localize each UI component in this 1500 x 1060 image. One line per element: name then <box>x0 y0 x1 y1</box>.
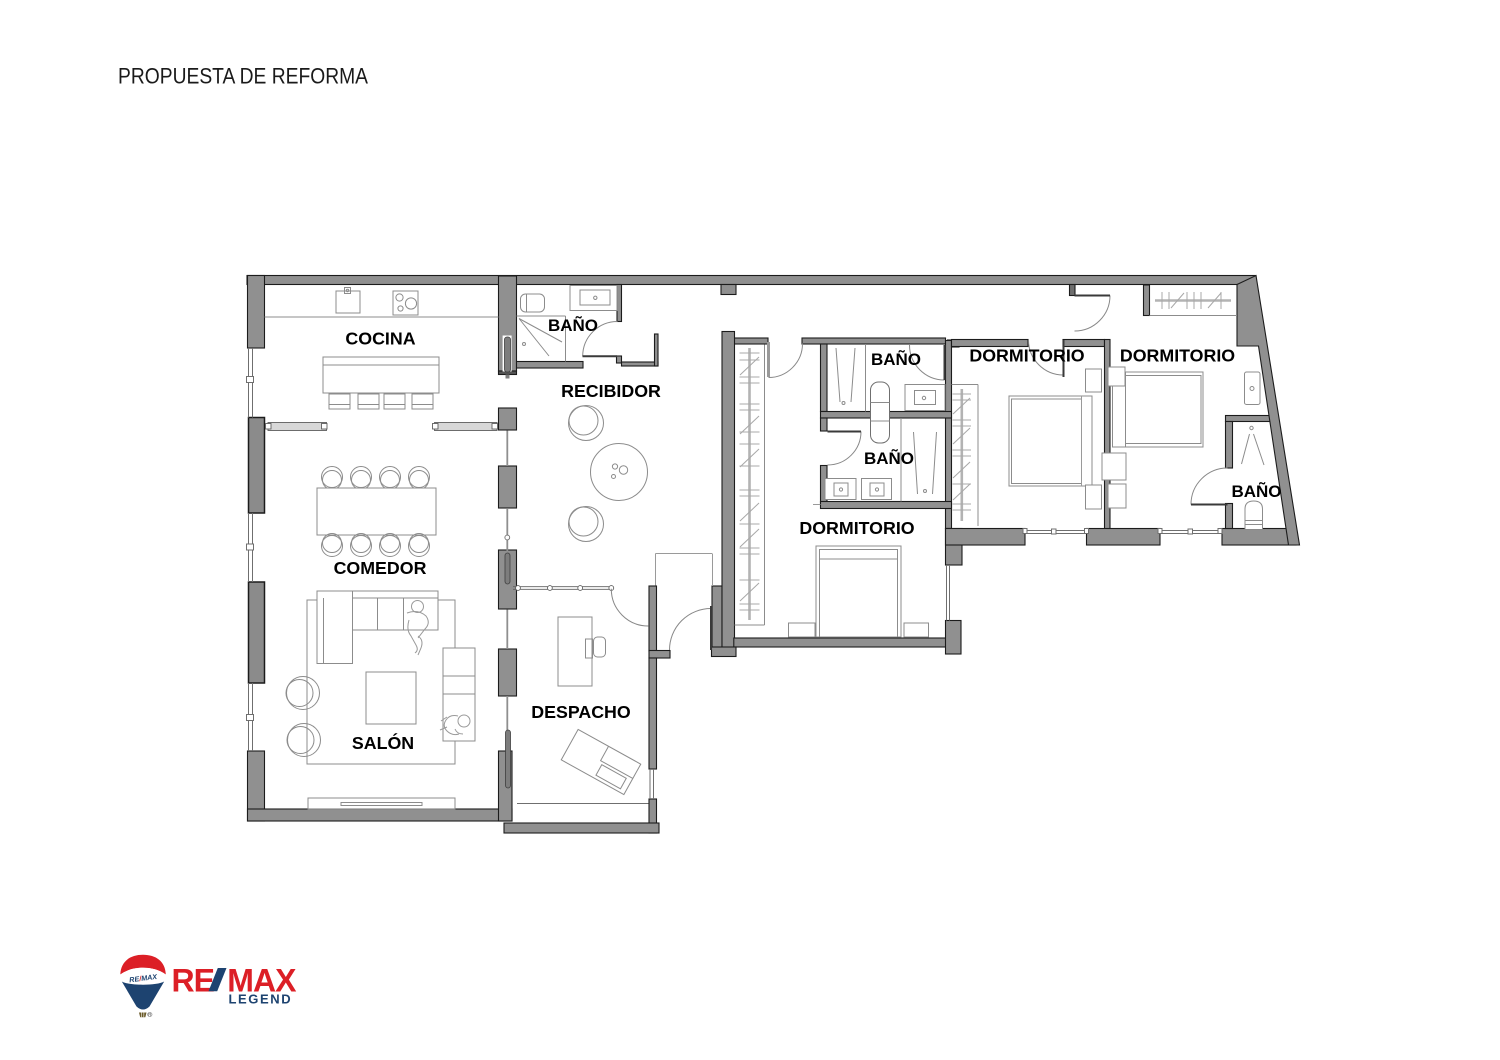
svg-text:BAÑO: BAÑO <box>871 349 921 369</box>
svg-text:LEGEND: LEGEND <box>229 991 293 1006</box>
svg-text:RECIBIDOR: RECIBIDOR <box>561 381 661 401</box>
svg-text:BAÑO: BAÑO <box>548 315 598 335</box>
svg-text:SALÓN: SALÓN <box>352 732 414 753</box>
svg-text:COCINA: COCINA <box>345 329 415 349</box>
svg-text:BAÑO: BAÑO <box>1231 481 1281 501</box>
svg-text:BAÑO: BAÑO <box>864 448 914 468</box>
svg-text:RE: RE <box>172 962 215 998</box>
svg-text:DESPACHO: DESPACHO <box>531 702 631 722</box>
svg-text:DORMITORIO: DORMITORIO <box>969 346 1084 366</box>
svg-text:COMEDOR: COMEDOR <box>334 558 427 578</box>
svg-text:PROPUESTA DE REFORMA: PROPUESTA DE REFORMA <box>118 64 368 89</box>
svg-text:DORMITORIO: DORMITORIO <box>799 518 914 538</box>
svg-text:DORMITORIO: DORMITORIO <box>1120 346 1235 366</box>
